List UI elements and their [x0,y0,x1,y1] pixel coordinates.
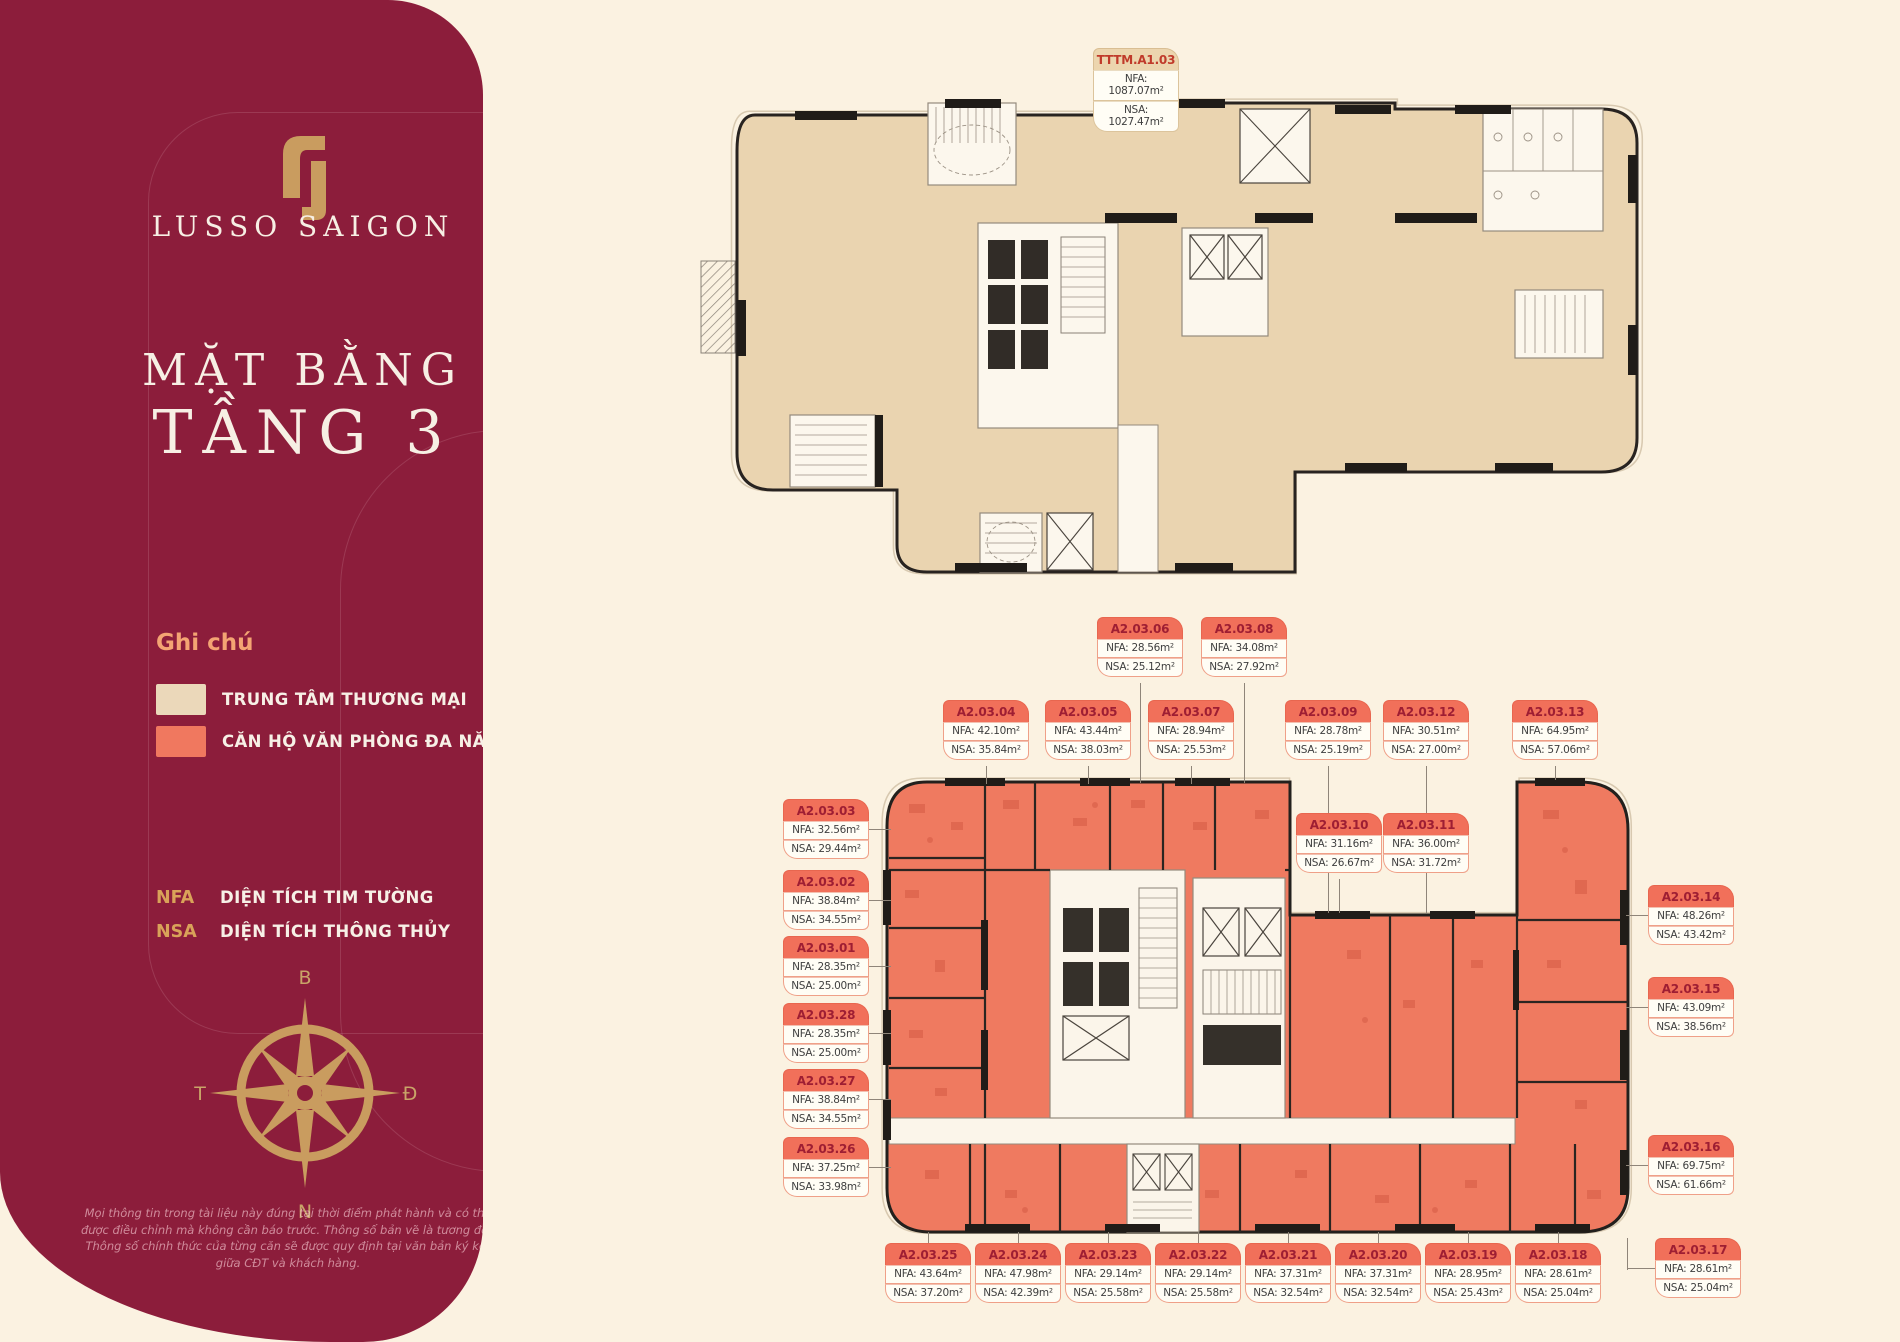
unit-callout: A2.03.03NFA: 32.56m²NSA: 29.44m² [783,799,869,859]
unit-nsa: NSA: 25.04m² [1515,1284,1601,1303]
unit-nsa: NSA: 34.55m² [783,911,869,930]
unit-id: A2.03.19 [1425,1243,1511,1265]
callout-connector [1108,1232,1109,1243]
unit-nsa: NSA: 38.03m² [1045,741,1131,760]
unit-callout: A2.03.06NFA: 28.56m²NSA: 25.12m² [1097,617,1183,677]
unit-nsa: NSA: 25.19m² [1285,741,1371,760]
unit-nfa: NFA: 43.64m² [885,1265,971,1284]
unit-id: A2.03.15 [1648,977,1734,999]
page-title-line2: TẦNG 3 [53,398,483,468]
unit-callout: A2.03.14NFA: 48.26m²NSA: 43.42m² [1648,885,1734,945]
unit-callout: A2.03.26NFA: 37.25m²NSA: 33.98m² [783,1137,869,1197]
abbr-label: DIỆN TÍCH TIM TƯỜNG [220,888,434,907]
unit-nfa: NFA: 38.84m² [783,892,869,911]
unit-nsa: NSA: 1027.47m² [1093,101,1179,132]
unit-nsa: NSA: 25.53m² [1148,741,1234,760]
unit-id: A2.03.25 [885,1243,971,1265]
unit-nsa: NSA: 31.72m² [1383,854,1469,873]
unit-nsa: NSA: 57.06m² [1512,741,1598,760]
unit-callout: A2.03.01NFA: 28.35m²NSA: 25.00m² [783,936,869,996]
unit-callout: A2.03.20NFA: 37.31m²NSA: 32.54m² [1335,1243,1421,1303]
callout-connector [928,1232,929,1243]
callout-connector [1198,1232,1199,1243]
unit-id: A2.03.20 [1335,1243,1421,1265]
legend-swatch-commercial [156,684,206,715]
unit-nfa: NFA: 32.56m² [783,821,869,840]
commercial-unit-callout: TTTM.A1.03NFA: 1087.07m²NSA: 1027.47m² [1093,48,1179,132]
callout-connector [869,900,891,901]
callout-connector [869,1167,891,1168]
unit-nsa: NSA: 27.92m² [1201,658,1287,677]
unit-id: A2.03.17 [1655,1238,1741,1260]
unit-nsa: NSA: 29.44m² [783,840,869,859]
unit-id: A2.03.22 [1155,1243,1241,1265]
unit-callout: A2.03.04NFA: 42.10m²NSA: 35.84m² [943,700,1029,760]
callout-connector [869,829,891,830]
unit-nsa: NSA: 25.58m² [1155,1284,1241,1303]
callout-connector [1558,1232,1559,1243]
unit-nsa: NSA: 37.20m² [885,1284,971,1303]
unit-nfa: NFA: 28.35m² [783,1025,869,1044]
unit-callout: A2.03.23NFA: 29.14m²NSA: 25.58m² [1065,1243,1151,1303]
unit-callout: A2.03.21NFA: 37.31m²NSA: 32.54m² [1245,1243,1331,1303]
legend-heading: Ghi chú [156,630,254,656]
unit-id: A2.03.08 [1201,617,1287,639]
callout-connector [986,766,987,784]
callout-connector [1339,879,1340,913]
unit-nfa: NFA: 1087.07m² [1093,70,1179,101]
unit-nfa: NFA: 69.75m² [1648,1157,1734,1176]
unit-nfa: NFA: 28.95m² [1425,1265,1511,1284]
unit-nfa: NFA: 37.25m² [783,1159,869,1178]
callout-connector [1088,766,1089,784]
unit-nfa: NFA: 28.56m² [1097,639,1183,658]
unit-nfa: NFA: 64.95m² [1512,722,1598,741]
unit-callout: A2.03.02NFA: 38.84m²NSA: 34.55m² [783,870,869,930]
unit-callout: A2.03.27NFA: 38.84m²NSA: 34.55m² [783,1069,869,1129]
unit-nfa: NFA: 38.84m² [783,1091,869,1110]
unit-nsa: NSA: 42.39m² [975,1284,1061,1303]
unit-callout: A2.03.25NFA: 43.64m²NSA: 37.20m² [885,1243,971,1303]
unit-id: TTTM.A1.03 [1093,48,1179,70]
unit-nfa: NFA: 43.09m² [1648,999,1734,1018]
unit-nsa: NSA: 27.00m² [1383,741,1469,760]
legend-label: TRUNG TÂM THƯƠNG MẠI [222,690,467,709]
unit-id: A2.03.21 [1245,1243,1331,1265]
abbr-key: NFA [156,888,198,908]
unit-id: A2.03.06 [1097,617,1183,639]
callout-connector [1626,915,1648,916]
legend-swatch-officetel [156,726,206,757]
unit-nfa: NFA: 28.94m² [1148,722,1234,741]
unit-nsa: NSA: 25.43m² [1425,1284,1511,1303]
unit-id: A2.03.11 [1383,813,1469,835]
unit-nfa: NFA: 42.10m² [943,722,1029,741]
sidebar-panel: LUSSO SAIGON MẶT BẰNG TẦNG 3 Ghi chú TRU… [0,0,483,1342]
unit-nfa: NFA: 37.31m² [1245,1265,1331,1284]
unit-nfa: NFA: 47.98m² [975,1265,1061,1284]
unit-callout: A2.03.05NFA: 43.44m²NSA: 38.03m² [1045,700,1131,760]
unit-id: A2.03.01 [783,936,869,958]
unit-id: A2.03.09 [1285,700,1371,722]
legend-item-commercial: TRUNG TÂM THƯƠNG MẠI [156,684,467,715]
page-title-line1: MẶT BẰNG [53,345,483,396]
unit-nfa: NFA: 30.51m² [1383,722,1469,741]
callout-connector [1627,1238,1628,1270]
callout-connector [1468,1232,1469,1243]
disclaimer-text: Mọi thông tin trong tài liệu này đúng tạ… [78,1205,483,1272]
callout-connector [1288,1232,1289,1243]
unit-nsa: NSA: 43.42m² [1648,926,1734,945]
unit-callout: A2.03.16NFA: 69.75m²NSA: 61.66m² [1648,1135,1734,1195]
unit-id: A2.03.14 [1648,885,1734,907]
callout-connector [1627,1268,1655,1269]
unit-id: A2.03.24 [975,1243,1061,1265]
unit-nsa: NSA: 25.00m² [783,1044,869,1063]
unit-callout: A2.03.17NFA: 28.61m²NSA: 25.04m² [1655,1238,1741,1298]
unit-nfa: NFA: 31.16m² [1296,835,1382,854]
unit-nfa: NFA: 28.61m² [1655,1260,1741,1279]
unit-callout: A2.03.11NFA: 36.00m²NSA: 31.72m² [1383,813,1469,873]
unit-id: A2.03.23 [1065,1243,1151,1265]
unit-nsa: NSA: 25.04m² [1655,1279,1741,1298]
unit-id: A2.03.27 [783,1069,869,1091]
callout-connector [1378,1232,1379,1243]
abbreviation-nsa: NSA DIỆN TÍCH THÔNG THỦY [156,922,450,942]
unit-nfa: NFA: 28.78m² [1285,722,1371,741]
callout-connector [1626,1007,1648,1008]
unit-nsa: NSA: 32.54m² [1335,1284,1421,1303]
unit-id: A2.03.03 [783,799,869,821]
compass-west-label: T [193,1083,206,1105]
unit-nsa: NSA: 25.12m² [1097,658,1183,677]
unit-nfa: NFA: 37.31m² [1335,1265,1421,1284]
commercial-floor-plan [695,95,1655,585]
callout-connector [1244,683,1245,783]
compass-east-label: Đ [403,1083,418,1105]
unit-nfa: NFA: 34.08m² [1201,639,1287,658]
unit-callout: A2.03.18NFA: 28.61m²NSA: 25.04m² [1515,1243,1601,1303]
unit-id: A2.03.28 [783,1003,869,1025]
callout-connector [1626,1165,1648,1166]
callout-connector [1191,766,1192,784]
unit-nfa: NFA: 28.35m² [783,958,869,977]
abbreviation-nfa: NFA DIỆN TÍCH TIM TƯỜNG [156,888,434,908]
unit-nfa: NFA: 48.26m² [1648,907,1734,926]
unit-callout: A2.03.15NFA: 43.09m²NSA: 38.56m² [1648,977,1734,1037]
callout-connector [1140,683,1141,783]
unit-id: A2.03.12 [1383,700,1469,722]
abbr-label: DIỆN TÍCH THÔNG THỦY [220,922,450,941]
unit-callout: A2.03.24NFA: 47.98m²NSA: 42.39m² [975,1243,1061,1303]
legend-item-officetel: CĂN HỘ VĂN PHÒNG ĐA NĂNG [156,726,483,757]
callout-connector [869,1099,891,1100]
unit-id: A2.03.04 [943,700,1029,722]
unit-id: A2.03.05 [1045,700,1131,722]
unit-callout: A2.03.07NFA: 28.94m²NSA: 25.53m² [1148,700,1234,760]
unit-id: A2.03.13 [1512,700,1598,722]
unit-nfa: NFA: 29.14m² [1155,1265,1241,1284]
callout-connector [869,1033,891,1034]
unit-nfa: NFA: 36.00m² [1383,835,1469,854]
abbr-key: NSA [156,922,198,942]
unit-nsa: NSA: 32.54m² [1245,1284,1331,1303]
unit-id: A2.03.02 [783,870,869,892]
unit-nfa: NFA: 43.44m² [1045,722,1131,741]
unit-nsa: NSA: 26.67m² [1296,854,1382,873]
legend-label: CĂN HỘ VĂN PHÒNG ĐA NĂNG [222,732,483,751]
unit-callout: A2.03.10NFA: 31.16m²NSA: 26.67m² [1296,813,1382,873]
unit-callout: A2.03.28NFA: 28.35m²NSA: 25.00m² [783,1003,869,1063]
compass-north-label: B [298,967,311,989]
unit-callout: A2.03.08NFA: 34.08m²NSA: 27.92m² [1201,617,1287,677]
callout-connector [1555,766,1556,780]
unit-nfa: NFA: 28.61m² [1515,1265,1601,1284]
unit-id: A2.03.26 [783,1137,869,1159]
brand-name: LUSSO SAIGON [53,210,483,243]
unit-id: A2.03.18 [1515,1243,1601,1265]
unit-callout: A2.03.13NFA: 64.95m²NSA: 57.06m² [1512,700,1598,760]
unit-callout: A2.03.19NFA: 28.95m²NSA: 25.43m² [1425,1243,1511,1303]
unit-nsa: NSA: 35.84m² [943,741,1029,760]
unit-nsa: NSA: 33.98m² [783,1178,869,1197]
compass-icon: B N T Đ [192,966,418,1222]
unit-id: A2.03.07 [1148,700,1234,722]
unit-callout: A2.03.09NFA: 28.78m²NSA: 25.19m² [1285,700,1371,760]
unit-nfa: NFA: 29.14m² [1065,1265,1151,1284]
unit-callout: A2.03.12NFA: 30.51m²NSA: 27.00m² [1383,700,1469,760]
unit-nsa: NSA: 25.58m² [1065,1284,1151,1303]
callout-connector [869,966,891,967]
unit-nsa: NSA: 25.00m² [783,977,869,996]
callout-connector [1018,1232,1019,1243]
unit-id: A2.03.16 [1648,1135,1734,1157]
unit-callout: A2.03.22NFA: 29.14m²NSA: 25.58m² [1155,1243,1241,1303]
unit-nsa: NSA: 61.66m² [1648,1176,1734,1195]
unit-id: A2.03.10 [1296,813,1382,835]
unit-nsa: NSA: 34.55m² [783,1110,869,1129]
officetel-floor-plan [875,770,1645,1250]
unit-nsa: NSA: 38.56m² [1648,1018,1734,1037]
